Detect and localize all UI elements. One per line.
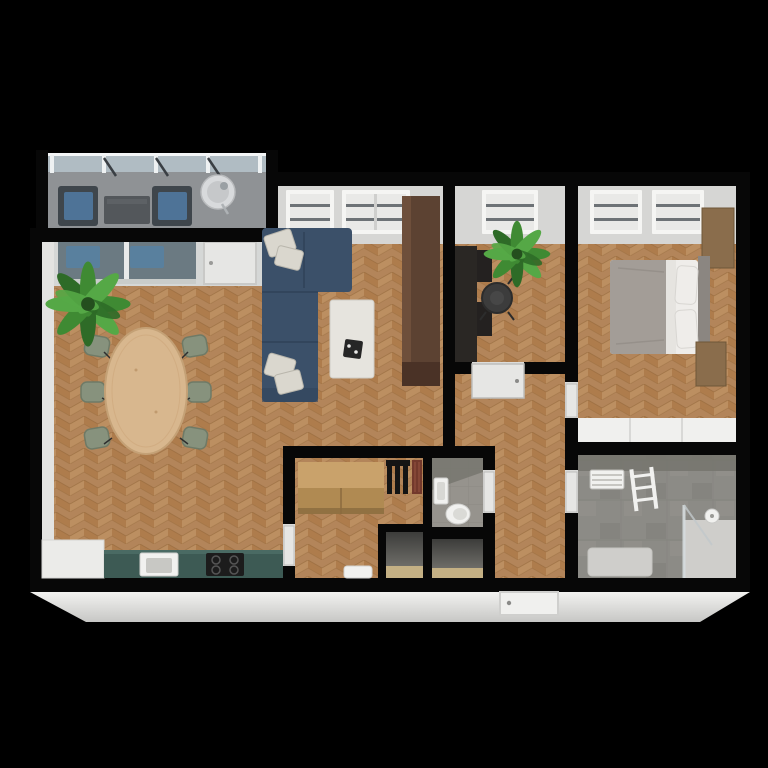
wall-office-hall-a — [443, 362, 472, 374]
coffee-table — [330, 300, 374, 378]
entrance-door-handle — [507, 601, 511, 605]
wall-wc-right-b — [483, 513, 495, 578]
office-plant — [484, 221, 551, 288]
living-room-plant — [45, 261, 130, 346]
wall-bottom — [30, 578, 750, 592]
bed-pillow — [675, 309, 699, 348]
window-bar — [290, 218, 330, 221]
bedroom-nightstand — [696, 342, 726, 386]
tray-item — [347, 344, 351, 348]
living-window-1 — [286, 190, 334, 234]
wall-top — [278, 172, 750, 186]
kitchen-cooktop — [206, 553, 244, 576]
window-bar — [656, 204, 700, 207]
railing-post — [102, 155, 106, 173]
wood-knot — [155, 411, 158, 414]
window-bar — [594, 218, 638, 221]
wall-closet1-top — [378, 524, 430, 532]
wall-storage-left-b — [283, 566, 295, 578]
dining-chair — [181, 426, 208, 450]
glass-reflection-chair — [130, 246, 164, 268]
closet1-floor — [386, 566, 423, 578]
railing-post — [50, 155, 54, 173]
bathtub — [588, 548, 652, 576]
hallway-floor-lower — [495, 446, 565, 578]
dining-chair — [83, 426, 110, 450]
kitchen-tall-cabinet — [42, 540, 104, 578]
kitchen-counter-edge — [104, 550, 283, 554]
window-bar — [594, 204, 638, 207]
floorplan-canvas: Top-down 3D render of an apartment floor… — [0, 0, 768, 768]
railing-post — [258, 155, 262, 173]
shower-head-center — [710, 514, 714, 518]
exterior-wall-band — [30, 592, 750, 622]
wall-wc-left — [423, 446, 432, 578]
bathroom-wall-shade — [578, 455, 736, 471]
glass-reflection-chair — [66, 246, 100, 268]
floorplan-render — [0, 0, 768, 768]
coat-rack-hook — [387, 466, 392, 494]
wardrobe-base — [402, 362, 440, 386]
wc-door[interactable] — [484, 472, 494, 512]
living-window-2 — [342, 190, 410, 234]
wall-living-hall — [443, 186, 455, 446]
balcony-cushion-right — [158, 192, 187, 220]
wardrobe-light-edge — [402, 196, 411, 362]
shower-tray — [684, 520, 736, 578]
bed-headboard — [698, 256, 710, 356]
wall-closet1-left — [378, 524, 386, 578]
wall-storage-left-a — [283, 446, 295, 524]
bedroom-door[interactable] — [566, 384, 577, 417]
sideboard-top — [298, 462, 384, 488]
coffee-table-tray — [343, 339, 363, 359]
window-glazing — [594, 194, 638, 230]
railing-post — [154, 155, 158, 173]
bedroom-window-1 — [590, 190, 642, 234]
kitchen-sink-basin — [146, 558, 172, 573]
office-desk — [455, 246, 477, 362]
glass-door-track — [58, 279, 196, 284]
wall-right — [736, 172, 750, 592]
wall-left — [30, 228, 42, 592]
dining-chair — [187, 382, 211, 402]
built-in-wardrobe — [578, 418, 736, 442]
glass-door-mullion — [124, 242, 129, 283]
wall-hall-bedroom-a — [565, 186, 578, 382]
balcony-cushion-left — [64, 192, 93, 220]
room-closet-1 — [386, 532, 423, 578]
coat-rack-bar — [386, 460, 410, 466]
window-glazing — [486, 194, 534, 230]
window-bar — [486, 218, 534, 221]
door-handle — [209, 261, 213, 265]
window-mullion — [374, 194, 377, 230]
dining-chair — [81, 382, 105, 402]
wood-knot — [135, 369, 138, 372]
wall-balcony-bottom — [36, 228, 278, 242]
bathroom-door[interactable] — [566, 472, 577, 512]
room-closet-2 — [432, 539, 483, 578]
bed-sheet-fold — [666, 260, 676, 354]
window-bar — [486, 204, 534, 207]
coat-rack-hook — [403, 466, 408, 494]
left-wall-inner-face — [42, 240, 54, 578]
bed-pillow — [675, 265, 699, 304]
railing-post — [206, 155, 210, 173]
office-chair-seat — [490, 291, 504, 305]
wall-wc-bottom — [423, 527, 495, 539]
storage-radiator — [412, 460, 422, 494]
wall-wc-right-a — [483, 446, 495, 470]
storage-step — [344, 566, 372, 578]
window-bar — [656, 218, 700, 221]
window-glazing — [290, 194, 330, 230]
washbasin-bowl — [437, 482, 445, 500]
window-bar — [290, 204, 330, 207]
sideboard-shadow — [298, 508, 384, 514]
dining-set — [81, 328, 211, 454]
dining-table — [105, 328, 187, 454]
kitchen-counter — [104, 550, 283, 578]
wall-hall-bedroom-b — [565, 418, 578, 470]
office-window — [482, 190, 538, 234]
closet2-floor — [432, 568, 483, 578]
tray-item — [354, 350, 358, 354]
bistro-table-item — [220, 182, 228, 190]
coat-rack-hook — [395, 466, 400, 494]
bedroom-window-2 — [652, 190, 704, 234]
wall-storage-top — [283, 446, 432, 458]
storage-door[interactable] — [284, 526, 294, 565]
wall-bedroom-bath — [578, 442, 750, 455]
door-handle — [515, 379, 519, 383]
toilet-seat — [453, 508, 467, 520]
window-glazing — [656, 194, 700, 230]
balcony-table-highlight — [107, 199, 147, 204]
wall-hall-bedroom-c — [565, 513, 578, 578]
